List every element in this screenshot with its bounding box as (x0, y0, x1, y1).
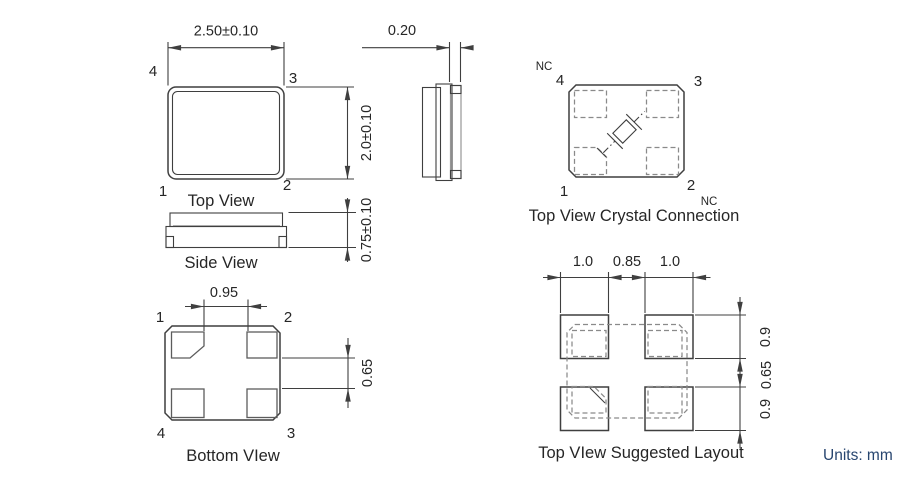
connection-package-outline (569, 85, 684, 177)
top-view: 2.50±0.10 2.0±0.10 4 3 1 2 Top View (149, 24, 375, 211)
top-view-caption: Top View (188, 192, 255, 210)
layout-top-extension-lines (561, 272, 694, 313)
pad-1-chamfered (172, 332, 205, 358)
end-view-body (436, 84, 452, 181)
layout-dim-vertical-gap: 0.65 (759, 361, 775, 389)
pad-4 (172, 389, 205, 418)
bottom-view-caption: Bottom VIew (186, 447, 280, 465)
lid-thickness-dim: 0.20 (388, 23, 416, 39)
dashed-pad-1-chamfered (575, 148, 607, 175)
dashed-pad-2 (647, 148, 679, 175)
pin-label-4: 4 (556, 72, 564, 89)
crystal-symbol (596, 104, 653, 161)
pin-label-1: 1 (159, 183, 167, 200)
pin-label-2: 2 (283, 177, 291, 194)
pad-1-chamfer-mark (597, 148, 606, 157)
dashed-pad-4 (575, 91, 607, 118)
layout-dim-pad-height-bottom: 0.9 (758, 399, 774, 419)
end-view-base (423, 88, 441, 178)
top-view-width-dim: 2.50±0.10 (194, 24, 258, 40)
bottom-package-outline (165, 326, 280, 420)
drawing-sheet: 2.50±0.10 2.0±0.10 4 3 1 2 Top View 0.20… (0, 0, 909, 481)
side-height-extension-lines (289, 213, 357, 248)
package-inner-outline (173, 92, 280, 175)
pin-label-2: 2 (687, 177, 695, 194)
pin-label-1: 1 (156, 309, 164, 326)
package-outline (168, 87, 284, 179)
pin-label-4: 4 (149, 63, 157, 80)
crystal-lead-pin1 (603, 141, 615, 153)
layout-dim-pad-width-right: 1.0 (660, 254, 680, 270)
top-view-height-dim: 2.0±0.10 (359, 105, 375, 161)
width-extension-lines (168, 42, 284, 86)
dashed-pad-br (648, 387, 682, 414)
suggested-layout-view: 1.0 0.85 1.0 0.9 0.65 0.9 Top VIew Sugge… (538, 254, 775, 462)
layout-dim-pad-width-left: 1.0 (573, 254, 593, 270)
crystal-body (613, 120, 636, 143)
height-extension-lines (286, 87, 354, 179)
pin-label-3: 3 (694, 73, 702, 90)
suggested-layout-caption: Top VIew Suggested Layout (538, 444, 744, 462)
layout-right-extension-lines (695, 315, 746, 431)
bottom-view: 1 2 4 3 Bottom VIew 0.95 0.65 (156, 285, 376, 465)
pad-2 (247, 332, 277, 358)
pad-gap-extension-lines (282, 358, 355, 389)
land-pad-tl (561, 315, 609, 359)
end-view: 0.20 (362, 23, 472, 181)
dashed-package-outline (567, 325, 687, 419)
side-view-pad-right (279, 237, 287, 248)
side-view-height-dim: 0.75±0.10 (359, 198, 375, 262)
pin-label-3: 3 (287, 425, 295, 442)
pin-label-3: 3 (289, 70, 297, 87)
crystal-lead-pin3 (634, 111, 645, 122)
side-view-caption: Side View (184, 254, 257, 272)
side-view-lid (170, 213, 283, 227)
land-pad-br (645, 387, 693, 431)
pin-label-1: 1 (560, 183, 568, 200)
crystal-connection-view: NC 4 3 1 2 NC Top View Crystal Connectio… (529, 61, 740, 225)
crystal-connection-caption: Top View Crystal Connection (529, 207, 740, 225)
dashed-pad-bl-chamfered (572, 387, 606, 414)
side-view-base (166, 227, 287, 248)
dashed-pad-3 (647, 91, 679, 118)
layout-dim-pad-gap: 0.85 (613, 254, 641, 270)
pin-label-4: 4 (157, 425, 165, 442)
crystal-package-drawing: 2.50±0.10 2.0±0.10 4 3 1 2 Top View 0.20… (0, 0, 909, 481)
units-note: Units: mm (823, 447, 893, 464)
dashed-pad-tr (648, 331, 682, 357)
lid-extension-lines (450, 42, 461, 82)
nc-label-top: NC (536, 61, 553, 73)
pad-3 (247, 389, 277, 418)
pad-gap-dim: 0.65 (360, 359, 376, 387)
dashed-pad-tl (572, 331, 606, 357)
layout-dim-pad-height-top: 0.9 (758, 327, 774, 347)
side-view-pad-left (166, 237, 174, 248)
land-pad-tr (645, 315, 693, 359)
pad-pitch-dim: 0.95 (210, 285, 238, 301)
pin-label-2: 2 (284, 309, 292, 326)
